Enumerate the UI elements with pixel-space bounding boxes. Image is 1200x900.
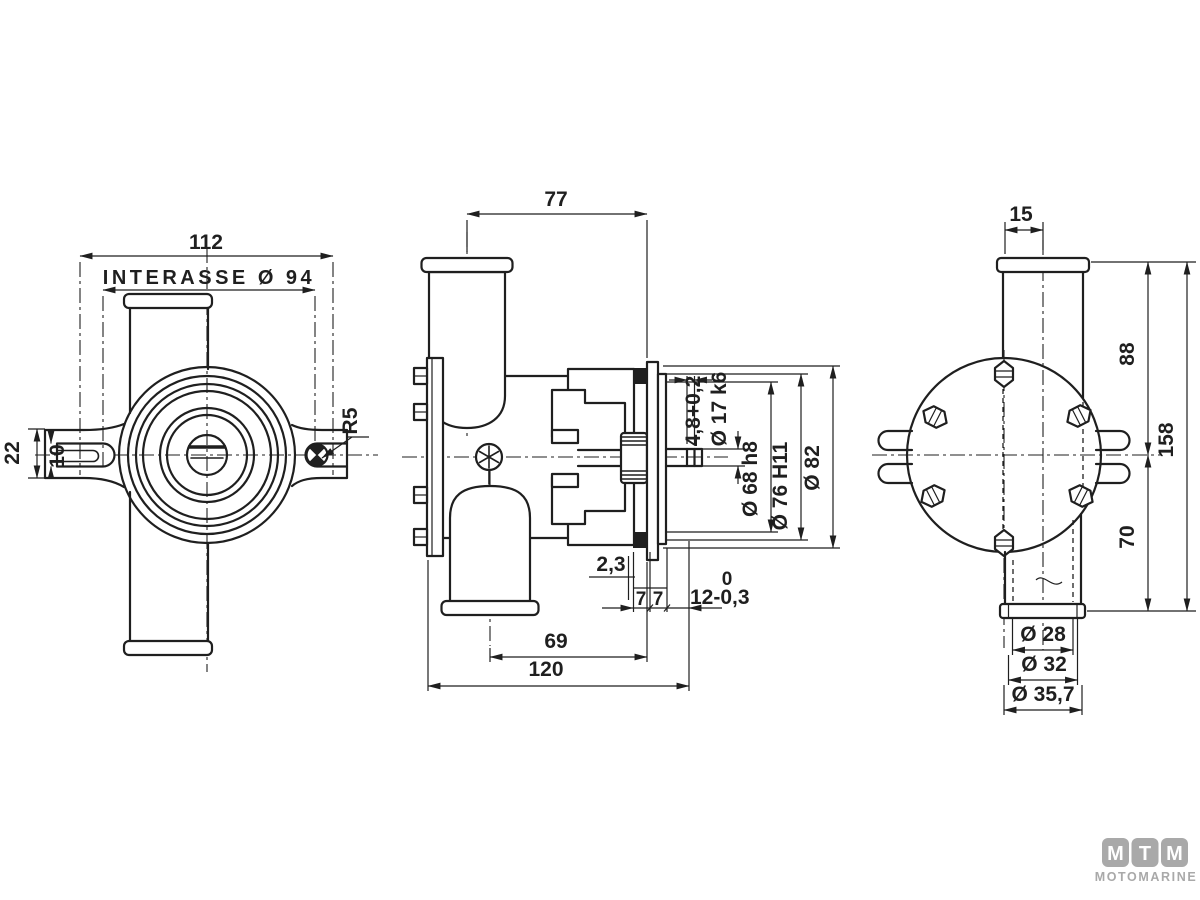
logo-letter-m1: M <box>1107 843 1124 865</box>
dim-158-label: 158 <box>1155 422 1178 457</box>
pump-drawing-canvas: 112 INTERASSE Ø 94 22 10 R5 <box>0 0 1200 900</box>
dim-7a-label: 7 <box>636 589 647 610</box>
side-section-view: 77 4,8+0,2 Ø 17 k6 Ø 68 h8 Ø 76 H11 <box>402 188 840 691</box>
splined-hub <box>621 433 647 483</box>
dim-112-label: 112 <box>189 231 223 254</box>
dim-groove-label: 4,8+0,2 <box>682 376 705 447</box>
dim-69-label: 69 <box>544 630 567 653</box>
dim-70-label: 70 <box>1116 525 1139 548</box>
dim-hose-diameters: Ø 28 Ø 32 Ø 35,7 <box>1004 618 1082 715</box>
dim-port-offset: 15 <box>1005 203 1043 254</box>
dim-7b-label: 7 <box>653 589 664 610</box>
dim-10-label: 10 <box>46 444 69 467</box>
dim-fillet-radius: R5 <box>322 407 369 458</box>
dim-23-label: 2,3 <box>596 553 625 576</box>
dim-r5-label: R5 <box>339 407 362 434</box>
shaft-section <box>578 450 621 466</box>
dim-o28-label: Ø 28 <box>1020 623 1066 646</box>
front-view: 112 INTERASSE Ø 94 22 10 R5 <box>1 231 378 672</box>
dim-shaft-dia-label: Ø 17 k6 <box>708 372 731 447</box>
dim-88-label: 88 <box>1116 342 1139 366</box>
dim-77-label: 77 <box>544 188 567 211</box>
mtm-logo: M T M MOTOMARINE <box>1095 838 1198 884</box>
dim-120-label: 120 <box>528 658 563 681</box>
dim-ear-height: 22 <box>1 429 45 478</box>
dim-interasse-label: INTERASSE Ø 94 <box>103 267 315 289</box>
dim-slot-width: 10 <box>46 431 69 479</box>
cover-plate <box>414 358 443 556</box>
dim-spigot-label: Ø 68 h8 <box>739 441 762 517</box>
dim-shaft-projection: 0 12-0,3 <box>690 569 750 609</box>
dim-clearance: 2,3 <box>589 552 635 612</box>
dim-groove-width: 4,8+0,2 <box>669 376 712 447</box>
dim-15-label: 15 <box>1009 203 1033 226</box>
dim-flange-dia-label: Ø 82 <box>801 445 824 491</box>
dim-heights: 88 70 158 <box>1087 262 1196 611</box>
dim-12-label: 12-0,3 <box>690 586 750 609</box>
dim-o32-label: Ø 32 <box>1021 653 1067 676</box>
logo-letter-m2: M <box>1166 843 1183 865</box>
dim-22-label: 22 <box>1 441 24 464</box>
logo-letter-t: T <box>1139 843 1151 865</box>
logo-subtitle: MOTOMARINE <box>1095 870 1198 884</box>
bottom-port-section <box>442 486 539 615</box>
rear-view: 15 88 70 158 Ø 28 Ø 32 Ø 35,7 <box>872 203 1196 715</box>
front-bottom-port <box>124 492 212 655</box>
impeller-screw-symbol <box>476 444 502 484</box>
dim-o357-label: Ø 35,7 <box>1011 683 1074 706</box>
break-line <box>1036 578 1062 584</box>
technical-drawing-page: 112 INTERASSE Ø 94 22 10 R5 <box>0 0 1200 900</box>
dim-pilot-label: Ø 76 H11 <box>769 441 792 530</box>
